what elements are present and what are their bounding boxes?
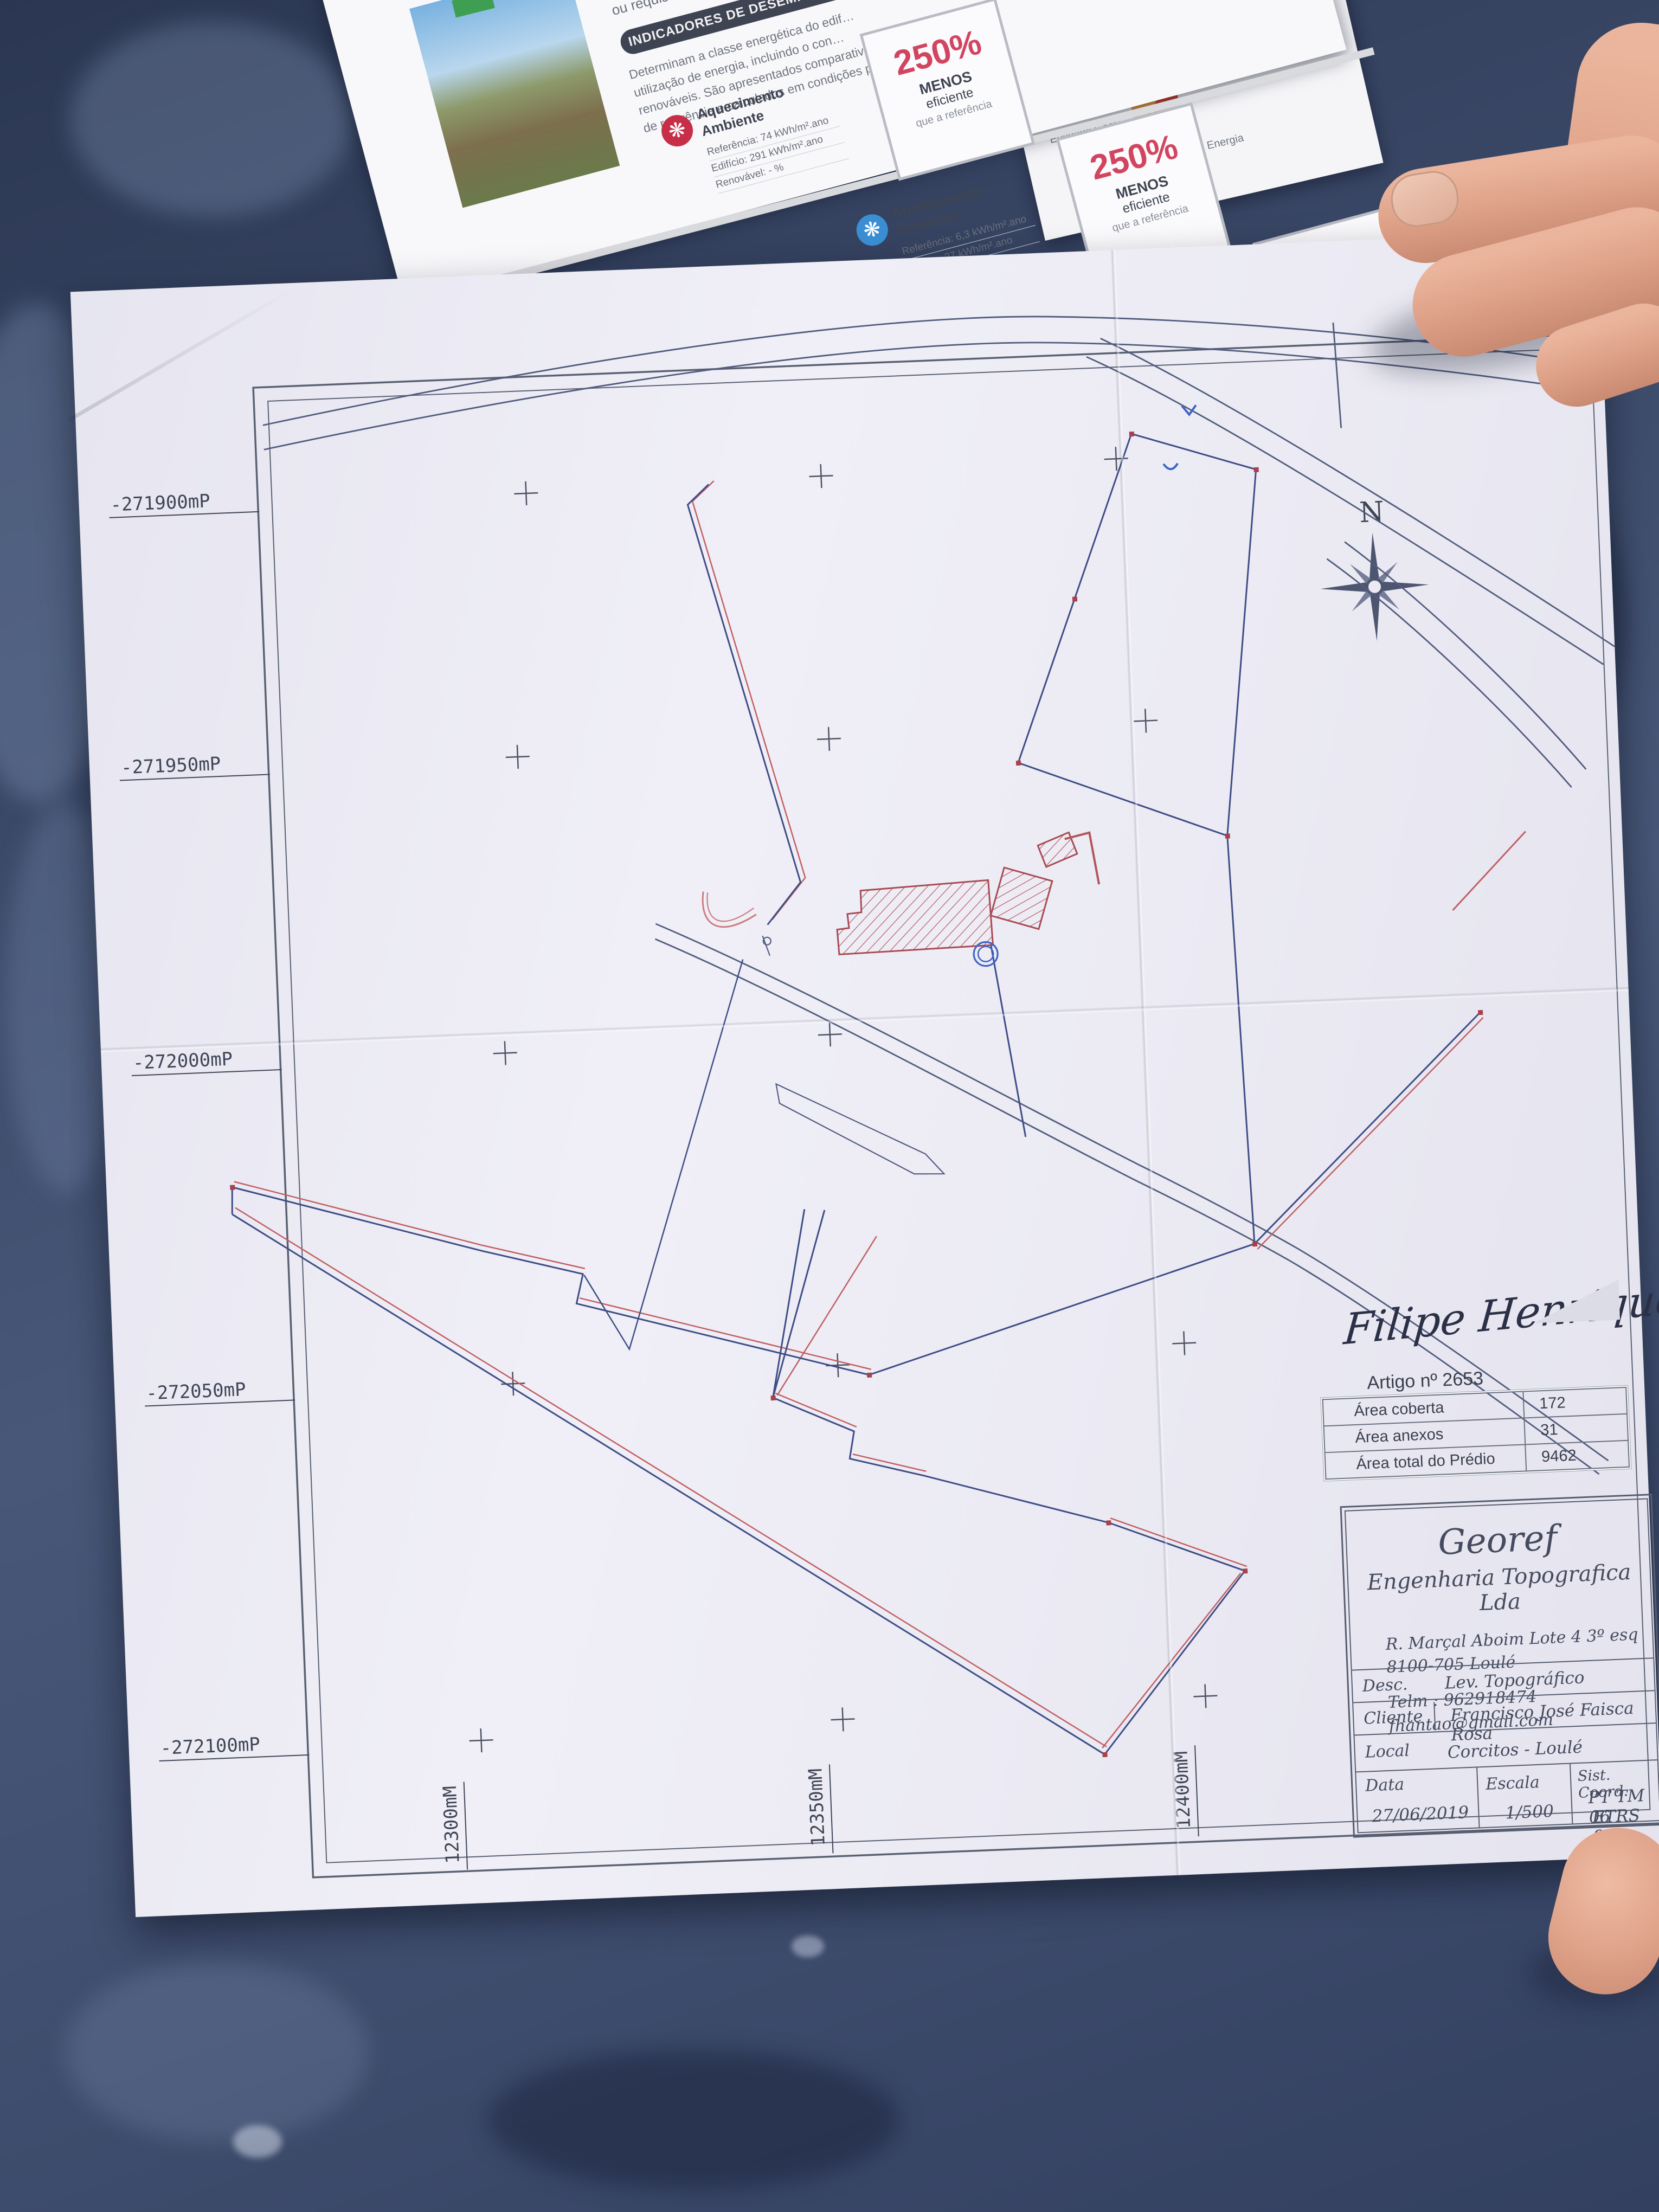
table-stain <box>233 2125 282 2158</box>
title-block: Georef Engenharia Topografica Lda R. Mar… <box>1340 1494 1659 1838</box>
company-subtitle: Engenharia Topografica Lda <box>1348 1559 1651 1621</box>
north-compass-rose: N <box>1317 494 1431 643</box>
data-cell: Data 27/06/2019 <box>1356 1768 1478 1834</box>
vertex-markers <box>201 419 1512 1791</box>
coord-label: -271950mP <box>120 753 221 779</box>
artigo-area-table: Artigo nº 2653 Área coberta 172 Área ane… <box>1321 1362 1630 1480</box>
coord-label: 12300mM <box>439 1785 464 1864</box>
company-name: Georef <box>1346 1514 1649 1566</box>
table-stain <box>792 1935 824 1957</box>
coord-label: -272000mP <box>132 1049 233 1074</box>
table-stain <box>65 1963 369 2142</box>
pct-box-aquecimento: 250% MENOS eficiente que a referência <box>859 0 1035 181</box>
coord-label: -271900mP <box>110 490 211 516</box>
north-label: N <box>1359 496 1385 530</box>
escala-cell: Escala 1/500 <box>1476 1764 1572 1829</box>
cooling-fan-icon: ❋ <box>853 211 891 249</box>
survey-plan-paper: -271900mP -271950mP -272000mP -272050mP … <box>70 230 1659 1917</box>
grid-crosses <box>419 445 1219 1753</box>
track-arc <box>702 890 756 928</box>
bottom-coordinate-labels: 12300mM 12350mM 12400mM <box>439 1745 1199 1870</box>
coord-label: 12350mM <box>805 1768 829 1847</box>
sist-coord-cell: Sist. Coord. PT TM 06 ETRS 89 <box>1570 1760 1659 1824</box>
parcel-boundaries <box>202 421 1509 1789</box>
table-stain <box>488 2049 900 2190</box>
main-building-hatched <box>835 880 993 954</box>
coord-label: -272050mP <box>146 1379 247 1404</box>
pole-symbols <box>1161 405 1199 469</box>
certificate-photo <box>409 0 620 208</box>
photo-scene: Entidade Fiscalizadora Direção Geral de … <box>0 0 1659 2212</box>
title-block-company: Georef Engenharia Topografica Lda R. Mar… <box>1346 1500 1653 1670</box>
table-stain <box>70 22 352 217</box>
annex-building-hatched <box>991 867 1052 929</box>
buildings <box>834 831 1102 954</box>
coord-label: -272100mP <box>160 1734 261 1759</box>
